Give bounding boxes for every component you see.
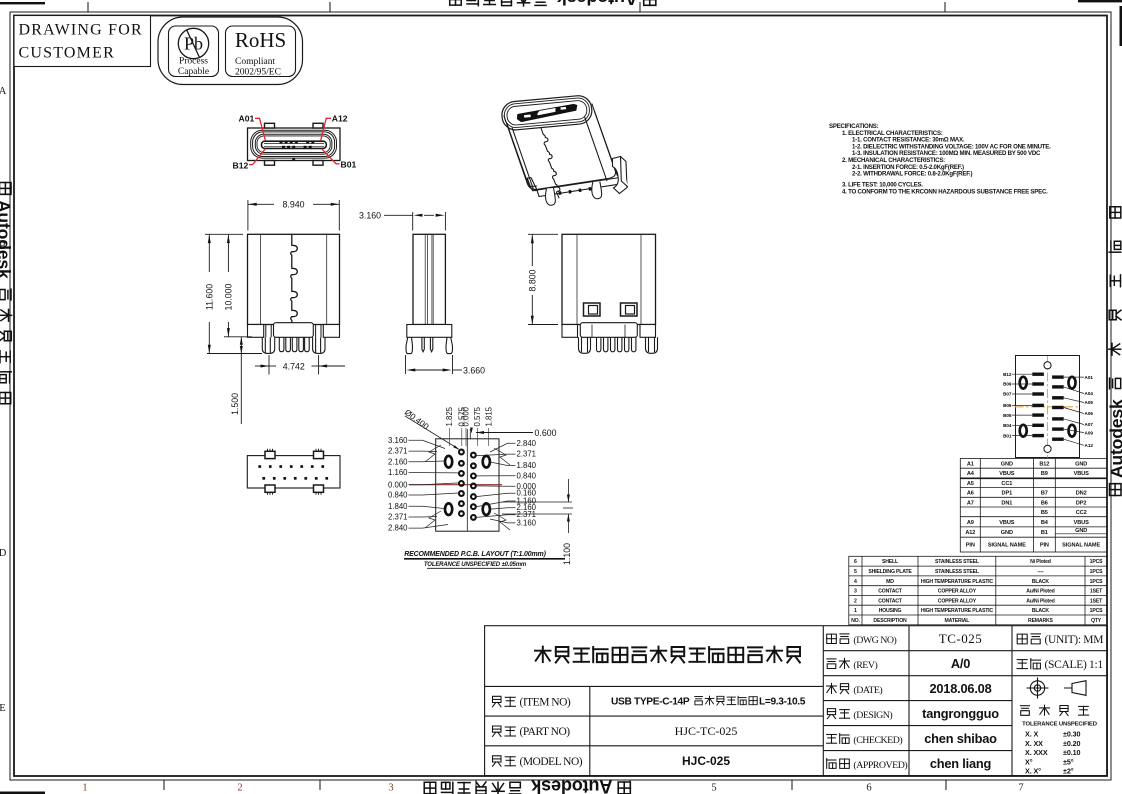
- svg-text:3.660: 3.660: [463, 365, 485, 375]
- svg-text:HJC-TC-025: HJC-TC-025: [675, 724, 738, 738]
- svg-text:A12: A12: [1085, 443, 1094, 448]
- svg-text:B12: B12: [233, 161, 249, 171]
- svg-text:2018.06.08: 2018.06.08: [929, 681, 991, 696]
- svg-text:CONTACT: CONTACT: [878, 589, 903, 595]
- svg-text:BLACK: BLACK: [1032, 579, 1050, 585]
- svg-text:2.371: 2.371: [388, 447, 408, 456]
- svg-text:Compliant: Compliant: [235, 57, 275, 67]
- svg-text:1.500: 1.500: [230, 393, 240, 415]
- svg-text:E: E: [0, 703, 6, 714]
- svg-text:A09: A09: [1085, 430, 1094, 435]
- svg-text:Autodesk: Autodesk: [556, 0, 638, 8]
- svg-text:Autodesk: Autodesk: [0, 200, 14, 279]
- svg-text:0.000: 0.000: [462, 406, 471, 426]
- svg-text:(DESIGN): (DESIGN): [853, 710, 892, 721]
- svg-text:1: 1: [854, 608, 857, 614]
- svg-text:2.371: 2.371: [388, 513, 408, 522]
- svg-text:(PART NO): (PART NO): [520, 726, 571, 738]
- svg-text:USB TYPE-C-14P: USB TYPE-C-14P: [611, 697, 690, 708]
- svg-text:2.371: 2.371: [517, 450, 537, 459]
- svg-text:Ni Ploted: Ni Ploted: [1030, 559, 1051, 565]
- svg-text:X. XX: X. XX: [1025, 739, 1043, 748]
- svg-text:HJC-025: HJC-025: [682, 754, 730, 768]
- svg-text:(MODEL NO): (MODEL NO): [520, 756, 583, 768]
- svg-text:COPPER ALLOY: COPPER ALLOY: [938, 598, 977, 604]
- svg-text:(CHECKED): (CHECKED): [853, 735, 902, 746]
- svg-text:3.160: 3.160: [359, 211, 381, 221]
- svg-text:X°: X°: [1025, 757, 1033, 766]
- svg-text:TOLERANCE UNSPECIFIED: TOLERANCE UNSPECIFIED: [1022, 722, 1097, 728]
- svg-text:VBUS: VBUS: [999, 471, 1015, 477]
- svg-text:X. XXX: X. XXX: [1025, 748, 1048, 757]
- svg-text:A05: A05: [1085, 400, 1094, 405]
- svg-text:DN2: DN2: [1076, 491, 1087, 497]
- svg-text:B04: B04: [1003, 423, 1012, 428]
- svg-text:HOUSING: HOUSING: [879, 608, 902, 614]
- svg-text:RECOMMENDED P.C.B. LAYOUT (T: RECOMMENDED P.C.B. LAYOUT (T:1.00mm): [404, 551, 546, 558]
- svg-text:±0.20: ±0.20: [1063, 739, 1081, 748]
- svg-text:A5: A5: [967, 481, 974, 487]
- svg-text:1.815: 1.815: [484, 406, 493, 426]
- svg-text:B01: B01: [1003, 433, 1012, 438]
- svg-text:0.575: 0.575: [473, 406, 482, 426]
- svg-text:0.600: 0.600: [535, 428, 557, 438]
- svg-text:(REV): (REV): [853, 660, 877, 671]
- svg-text:0.840: 0.840: [388, 491, 408, 500]
- svg-text:DP1: DP1: [1002, 491, 1013, 497]
- svg-text:CC1: CC1: [1001, 481, 1012, 487]
- svg-text:B12: B12: [1039, 461, 1049, 467]
- svg-text:B5: B5: [1041, 510, 1048, 516]
- svg-text:±2°: ±2°: [1063, 767, 1074, 776]
- svg-text:Autodesk: Autodesk: [1107, 399, 1122, 478]
- svg-text:SHELL: SHELL: [882, 559, 898, 565]
- svg-text:B6: B6: [1041, 500, 1048, 506]
- svg-text:8.940: 8.940: [282, 199, 304, 209]
- svg-text:A04: A04: [1085, 391, 1094, 396]
- svg-text:DP2: DP2: [1076, 500, 1087, 506]
- svg-text:B9: B9: [1041, 471, 1048, 477]
- svg-text:PIN: PIN: [966, 543, 975, 549]
- svg-text:±0.10: ±0.10: [1063, 748, 1081, 757]
- svg-text:Autodesk: Autodesk: [530, 777, 612, 794]
- svg-text:6: 6: [866, 783, 871, 794]
- svg-text:A06: A06: [1085, 411, 1094, 416]
- svg-text:Capable: Capable: [178, 67, 209, 77]
- svg-text:A/0: A/0: [951, 656, 970, 671]
- svg-text:1SET: 1SET: [1090, 598, 1103, 604]
- svg-text:1.840: 1.840: [388, 502, 408, 511]
- svg-text:GND: GND: [1001, 461, 1013, 467]
- svg-text:MATERIAL: MATERIAL: [945, 618, 970, 624]
- svg-text:2-2. WITHDRAWAL FORCE: 0.8-2.0: 2-2. WITHDRAWAL FORCE: 0.8-2.0KgF(REF.): [852, 171, 972, 178]
- svg-text:SIGNAL NAME: SIGNAL NAME: [1062, 543, 1100, 549]
- svg-text:±5°: ±5°: [1063, 757, 1074, 766]
- svg-text:A: A: [0, 86, 7, 97]
- svg-text:2: 2: [854, 598, 857, 604]
- svg-text:COPPER ALLOY: COPPER ALLOY: [938, 589, 977, 595]
- svg-text:3.160: 3.160: [517, 518, 537, 527]
- svg-text:1SET: 1SET: [1090, 589, 1103, 595]
- svg-text:3: 3: [854, 589, 857, 595]
- svg-text:1.825: 1.825: [445, 406, 454, 426]
- svg-text:tangrongguo: tangrongguo: [922, 706, 999, 721]
- svg-text:L=9.3-10.5: L=9.3-10.5: [759, 697, 806, 708]
- svg-text:D: D: [0, 548, 7, 559]
- svg-text:VBUS: VBUS: [999, 520, 1015, 526]
- svg-text:CONTACT: CONTACT: [878, 598, 903, 604]
- svg-text:7: 7: [1018, 783, 1023, 794]
- svg-text:B01: B01: [341, 160, 357, 170]
- svg-text:A01: A01: [239, 114, 255, 124]
- svg-text:GND: GND: [1001, 530, 1013, 536]
- svg-text:(UNIT): MM: (UNIT): MM: [1045, 634, 1104, 646]
- svg-text:5: 5: [854, 569, 857, 575]
- svg-text:MD: MD: [886, 579, 894, 585]
- svg-text:BLACK: BLACK: [1032, 608, 1050, 614]
- svg-text:1: 1: [82, 783, 87, 794]
- svg-text:(ITEM NO): (ITEM NO): [520, 697, 571, 709]
- svg-text:TOLERANCE UNSPECIFIED ±0.05mm: TOLERANCE UNSPECIFIED ±0.05mm: [424, 562, 527, 568]
- svg-text:STAINLESS STEEL: STAINLESS STEEL: [935, 559, 979, 565]
- svg-text:A7: A7: [967, 500, 974, 506]
- svg-text:A01: A01: [1085, 375, 1094, 380]
- svg-text:3: 3: [388, 783, 393, 794]
- svg-text:B09: B09: [1003, 382, 1012, 387]
- svg-text:(DWG NO): (DWG NO): [853, 635, 896, 646]
- svg-text:A6: A6: [967, 491, 974, 497]
- svg-text:2002/95/EC: 2002/95/EC: [235, 68, 281, 78]
- svg-text:chen shibao: chen shibao: [924, 731, 997, 746]
- svg-text:1.160: 1.160: [388, 468, 408, 477]
- svg-text:DRAWING FOR: DRAWING FOR: [19, 22, 143, 39]
- svg-text:A1: A1: [967, 461, 974, 467]
- svg-text:4. TO CONFORM TO THE KRCONN HA: 4. TO CONFORM TO THE KRCONN HAZARDOUS SU…: [842, 188, 1048, 195]
- svg-text:±0.30: ±0.30: [1063, 730, 1081, 739]
- svg-text:2: 2: [237, 783, 242, 794]
- svg-text:TC-025: TC-025: [939, 631, 982, 646]
- svg-text:STAINLESS STEEL: STAINLESS STEEL: [935, 569, 979, 575]
- svg-text:RoHS: RoHS: [235, 28, 286, 52]
- svg-text:GND: GND: [1075, 528, 1087, 534]
- svg-text:SHIELDING PLATE: SHIELDING PLATE: [868, 569, 912, 575]
- svg-text:B05: B05: [1003, 413, 1012, 418]
- svg-text:1PCS: 1PCS: [1090, 559, 1103, 565]
- svg-text:1PCS: 1PCS: [1090, 608, 1103, 614]
- svg-text:B12: B12: [1003, 372, 1012, 377]
- svg-text:REMARKS: REMARKS: [1028, 618, 1053, 624]
- svg-text:2.160: 2.160: [388, 457, 408, 466]
- svg-text:(APPROVED): (APPROVED): [853, 760, 907, 771]
- svg-text:4.742: 4.742: [283, 361, 305, 371]
- svg-text:8.800: 8.800: [527, 269, 537, 291]
- svg-text:(SCALE) 1:1: (SCALE) 1:1: [1045, 659, 1104, 671]
- svg-text:(DATE): (DATE): [853, 685, 882, 696]
- svg-text:A07: A07: [1085, 422, 1094, 427]
- svg-text:VBUS: VBUS: [1074, 520, 1090, 526]
- svg-text:X. X°: X. X°: [1025, 767, 1041, 776]
- svg-text:1.840: 1.840: [517, 461, 537, 470]
- svg-text:CUSTOMER: CUSTOMER: [19, 45, 115, 62]
- svg-text:B06: B06: [1003, 403, 1012, 408]
- svg-text:Process: Process: [179, 57, 208, 67]
- svg-text:QTY: QTY: [1091, 618, 1102, 624]
- svg-text:6: 6: [854, 559, 857, 565]
- svg-text:X. X: X. X: [1025, 730, 1038, 739]
- svg-text:0.840: 0.840: [517, 471, 537, 480]
- svg-text:A12: A12: [965, 530, 975, 536]
- svg-text:GND: GND: [1075, 461, 1087, 467]
- svg-text:A12: A12: [332, 114, 348, 124]
- svg-text:B7: B7: [1041, 491, 1048, 497]
- svg-text:B07: B07: [1003, 392, 1012, 397]
- svg-text:----: ----: [1037, 569, 1044, 575]
- svg-text:A4: A4: [967, 471, 975, 477]
- svg-text:5: 5: [711, 783, 716, 794]
- svg-text:2.840: 2.840: [388, 524, 408, 533]
- svg-text:chen liang: chen liang: [930, 756, 991, 771]
- svg-text:DESCRIPTION: DESCRIPTION: [873, 618, 907, 624]
- svg-text:HIGH TEMPERATURE PLASTIC: HIGH TEMPERATURE PLASTIC: [921, 579, 994, 585]
- svg-text:1PCS: 1PCS: [1090, 579, 1103, 585]
- svg-text:1PCS: 1PCS: [1090, 569, 1103, 575]
- svg-text:DN1: DN1: [1001, 500, 1012, 506]
- svg-text:Au/Ni Ploted: Au/Ni Ploted: [1026, 598, 1054, 604]
- svg-text:VBUS: VBUS: [1074, 471, 1090, 477]
- svg-text:B4: B4: [1041, 520, 1049, 526]
- svg-text:A9: A9: [967, 520, 974, 526]
- svg-text:B1: B1: [1041, 530, 1048, 536]
- svg-text:0.000: 0.000: [388, 480, 408, 489]
- svg-text:1.100: 1.100: [562, 543, 572, 565]
- svg-text:Au/Ni Ploted: Au/Ni Ploted: [1026, 589, 1054, 595]
- svg-text:PIN: PIN: [1040, 543, 1049, 549]
- svg-text:NO.: NO.: [851, 618, 860, 624]
- svg-text:2.840: 2.840: [517, 439, 537, 448]
- svg-text:10.000: 10.000: [223, 283, 233, 310]
- svg-text:SIGNAL NAME: SIGNAL NAME: [988, 543, 1026, 549]
- svg-text:3.160: 3.160: [388, 436, 408, 445]
- svg-text:4: 4: [854, 579, 857, 585]
- svg-text:11.600: 11.600: [204, 284, 214, 310]
- svg-text:HIGH TEMPERATURE PLASTIC: HIGH TEMPERATURE PLASTIC: [921, 608, 994, 614]
- svg-text:CC2: CC2: [1076, 510, 1087, 516]
